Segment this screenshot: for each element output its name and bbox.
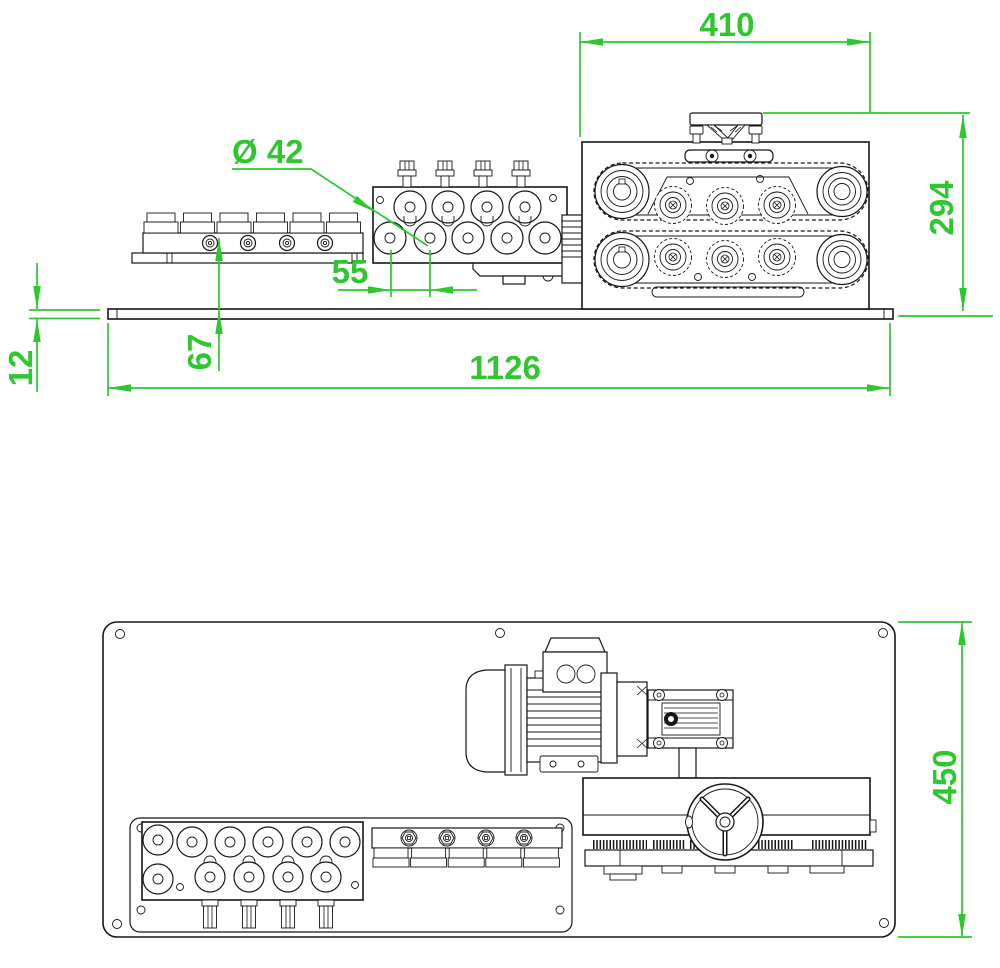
adjuster-bolt — [202, 900, 218, 928]
sprocket — [655, 239, 692, 276]
clamp-bracket — [685, 150, 773, 162]
sprocket — [759, 239, 796, 276]
base-plate-side — [108, 309, 893, 319]
adjuster-bolt — [280, 900, 296, 928]
sprocket — [707, 241, 744, 278]
roller — [491, 222, 523, 254]
roller — [374, 222, 406, 254]
roller — [292, 827, 322, 857]
adjuster-bolt — [241, 900, 257, 928]
coupling — [617, 682, 647, 756]
roller — [215, 827, 245, 857]
dim-label-1126: 1126 — [469, 349, 541, 386]
rail-bolt — [241, 236, 256, 251]
sprocket — [655, 187, 692, 224]
roller — [143, 864, 173, 894]
roller — [143, 825, 173, 855]
rail-bolt — [203, 236, 218, 251]
top-view — [103, 622, 895, 937]
hex-bolt — [439, 830, 455, 846]
sprocket — [707, 188, 744, 225]
rail-bolt — [280, 236, 295, 251]
guide-rail-top — [372, 828, 562, 867]
dim-label-55: 55 — [332, 253, 369, 290]
sprocket — [759, 187, 796, 224]
dim-label-450: 450 — [926, 749, 963, 804]
hex-bolt — [401, 830, 417, 846]
motor-feet — [540, 756, 598, 772]
roller-row-bottom — [374, 222, 561, 254]
dim-label-67: 67 — [181, 334, 218, 371]
rail-bolt — [318, 236, 333, 251]
hex-bolt — [516, 830, 532, 846]
technical-drawing-canvas: 410 294 Ø 42 55 67 — [0, 0, 1000, 968]
belt-pulley — [595, 165, 649, 219]
hex-bolt — [478, 830, 494, 846]
roller — [253, 827, 283, 857]
feeder-unit-side — [582, 113, 869, 309]
roller — [529, 222, 561, 254]
roller — [177, 827, 207, 857]
technical-drawing-page: 410 294 Ø 42 55 67 — [0, 0, 1000, 968]
motor-fins-side — [562, 215, 583, 283]
handwheel-top — [686, 784, 764, 860]
dim-label-12: 12 — [2, 350, 39, 387]
dim-label-410: 410 — [699, 6, 754, 43]
roller — [452, 222, 484, 254]
belt-pulley — [817, 235, 867, 285]
gearbox-top — [648, 690, 733, 749]
dim-label-diameter-42: Ø 42 — [232, 133, 304, 170]
handwheel-knob — [686, 816, 693, 828]
adjuster-bolt — [318, 900, 334, 928]
terminal-box — [543, 638, 607, 692]
dim-label-294: 294 — [923, 180, 960, 236]
belt-pulley — [817, 167, 867, 217]
rail-segments — [373, 848, 559, 867]
feeder-unit-top — [583, 778, 876, 880]
output-shaft — [679, 748, 696, 778]
belt-pulley — [595, 233, 649, 287]
roller — [414, 222, 446, 254]
roller — [330, 827, 360, 857]
